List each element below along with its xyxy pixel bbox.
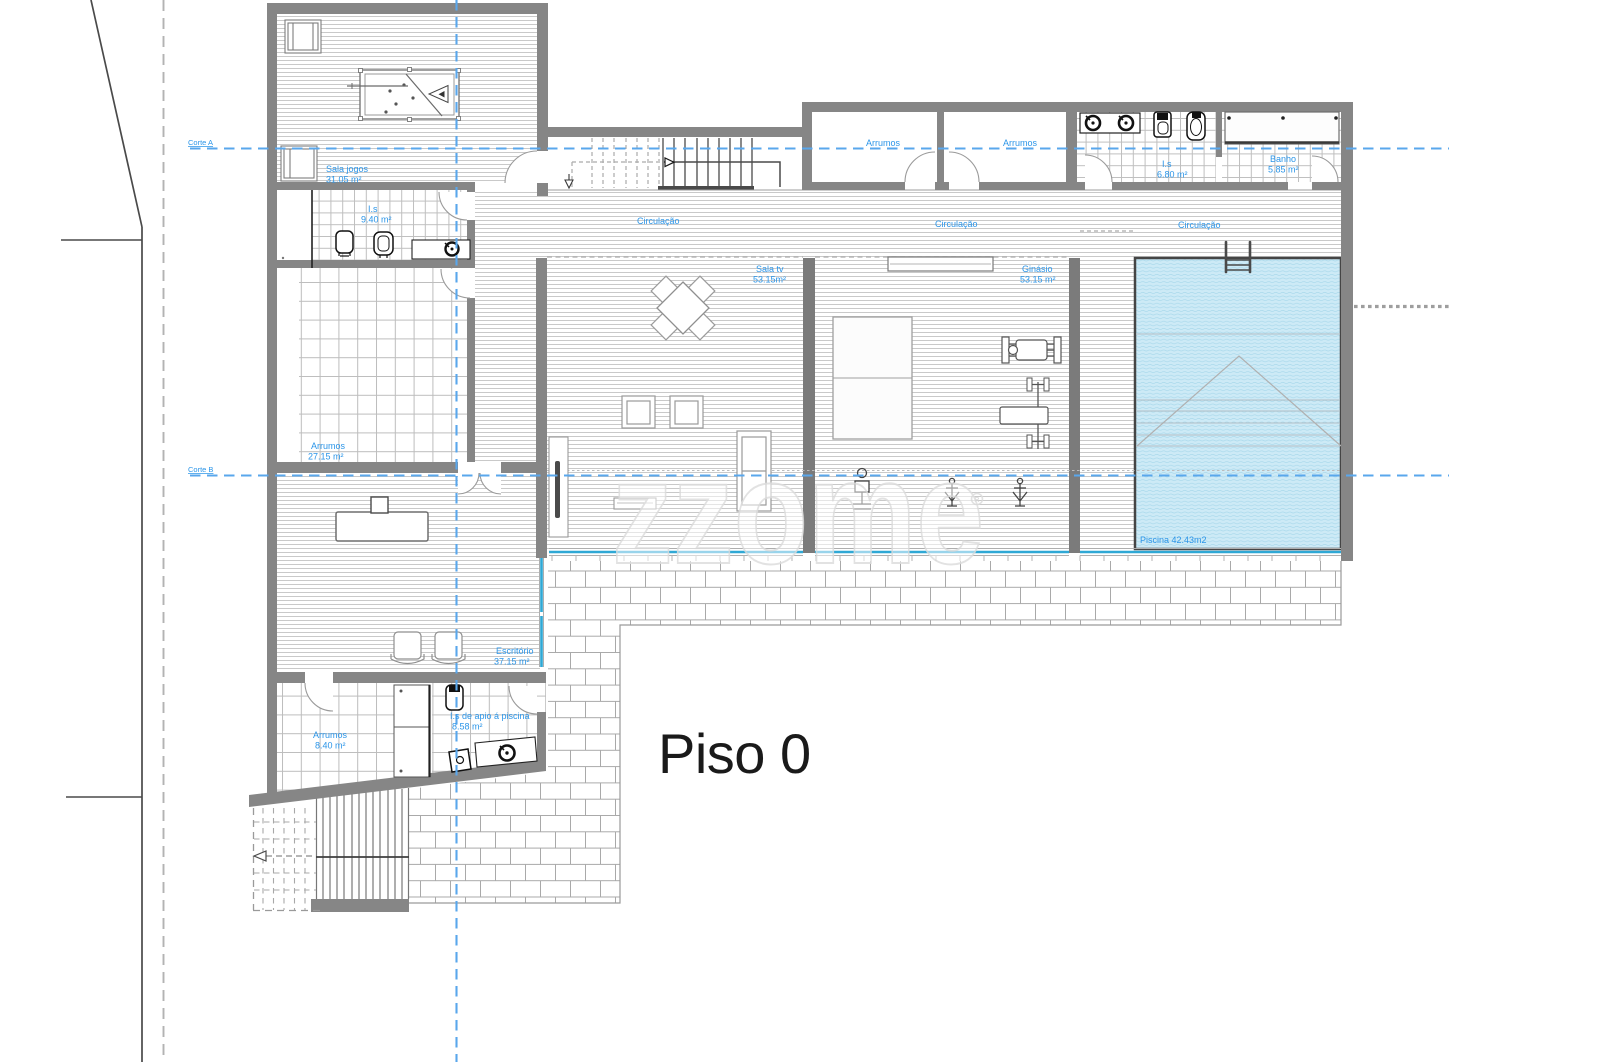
- svg-text:27.15 m²: 27.15 m²: [308, 452, 344, 462]
- svg-text:Arrumos: Arrumos: [311, 441, 346, 451]
- svg-text:Sala tv: Sala tv: [756, 264, 784, 274]
- svg-text:31.05 m²: 31.05 m²: [326, 175, 362, 185]
- svg-text:Piscina 42.43m2: Piscina 42.43m2: [1140, 535, 1207, 545]
- svg-text:Corte A: Corte A: [188, 138, 213, 147]
- svg-text:R: R: [974, 497, 979, 504]
- svg-text:5.85 m²: 5.85 m²: [1268, 165, 1299, 175]
- svg-text:Arrumos: Arrumos: [313, 730, 348, 740]
- svg-text:37.15 m²: 37.15 m²: [494, 657, 530, 667]
- svg-text:zzome: zzome: [612, 430, 984, 595]
- svg-text:8.40 m²: 8.40 m²: [315, 741, 346, 751]
- svg-text:53.15m²: 53.15m²: [753, 275, 786, 285]
- svg-text:Circulação: Circulação: [1178, 220, 1221, 230]
- svg-text:Arrumos: Arrumos: [866, 138, 901, 148]
- svg-text:Escritório: Escritório: [496, 646, 534, 656]
- svg-text:Banho: Banho: [1270, 154, 1296, 164]
- svg-text:Corte B: Corte B: [188, 465, 213, 474]
- svg-text:9.40 m²: 9.40 m²: [361, 215, 392, 225]
- svg-text:Circulação: Circulação: [935, 219, 978, 229]
- svg-text:Sala jogos: Sala jogos: [326, 164, 369, 174]
- svg-text:Piso 0: Piso 0: [658, 722, 811, 785]
- svg-text:I.s: I.s: [1162, 159, 1172, 169]
- svg-text:Circulação: Circulação: [637, 216, 680, 226]
- svg-text:6.80 m²: 6.80 m²: [1157, 170, 1188, 180]
- svg-text:53.15 m²: 53.15 m²: [1020, 275, 1056, 285]
- svg-text:Ginásio: Ginásio: [1022, 264, 1053, 274]
- svg-text:I.s de apio á piscina: I.s de apio á piscina: [450, 711, 530, 721]
- svg-text:8.58 m²: 8.58 m²: [452, 722, 483, 732]
- svg-text:Arrumos: Arrumos: [1003, 138, 1038, 148]
- svg-text:I.s: I.s: [368, 204, 378, 214]
